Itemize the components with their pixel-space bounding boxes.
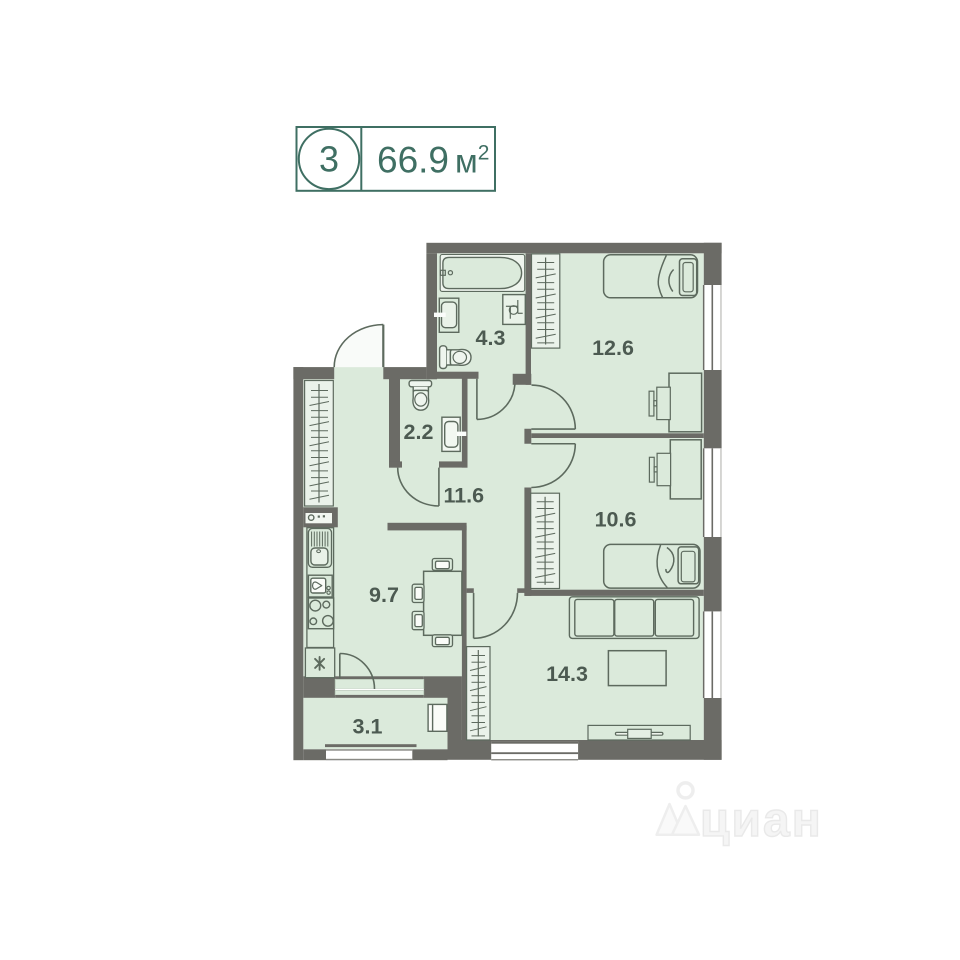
svg-text:10.6: 10.6 — [595, 507, 637, 531]
svg-text:12.6: 12.6 — [592, 336, 634, 360]
svg-text:11.6: 11.6 — [443, 484, 484, 508]
svg-text:3.1: 3.1 — [353, 715, 383, 739]
svg-text:4.3: 4.3 — [476, 326, 506, 350]
svg-text:2.2: 2.2 — [404, 420, 434, 444]
svg-text:9.7: 9.7 — [369, 583, 399, 607]
svg-text:циан: циан — [700, 794, 823, 847]
svg-text:14.3: 14.3 — [546, 662, 588, 686]
svg-text:66.9м2: 66.9м2 — [377, 140, 489, 181]
svg-text:3: 3 — [319, 139, 339, 180]
